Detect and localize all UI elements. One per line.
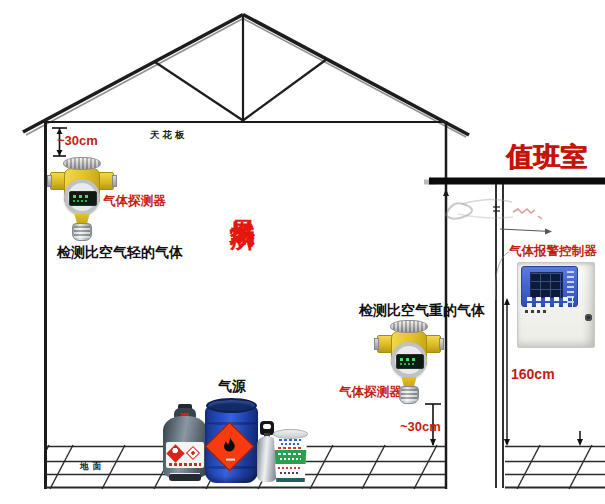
gas-detector-top-icon <box>48 157 116 241</box>
detector-display-text <box>400 363 414 365</box>
detector-left-port-cap <box>47 175 52 187</box>
bucket-micro-text <box>280 472 300 474</box>
floor-pointer-arrow <box>577 431 583 446</box>
wall-tick-arrow <box>443 189 449 196</box>
bucket-bottom-edge <box>274 478 307 482</box>
top-clearance-label: ~30cm <box>57 133 98 148</box>
ceiling-label: 天花板 <box>150 129 188 142</box>
duty-room-label: 值班室 <box>506 139 587 175</box>
bucket-band-lower <box>274 464 307 478</box>
controller-lcd-screen <box>530 272 563 298</box>
detector-left-port-cap <box>374 338 379 350</box>
detector-display-digits <box>400 358 418 361</box>
hazard-diamond-icon <box>166 444 184 462</box>
bucket-micro-text <box>278 447 302 449</box>
heavy-gas-note: 检测比空气重的气体 <box>359 302 485 320</box>
detector-sensor <box>72 223 92 241</box>
detector-right-port-cap <box>112 175 117 187</box>
faint-scribbles <box>446 199 542 219</box>
flammable-diamond-icon <box>205 422 254 471</box>
controller-text-marks <box>525 310 547 313</box>
bucket-micro-text <box>278 453 303 455</box>
flame-icon <box>220 437 240 457</box>
lpg-body <box>163 416 207 478</box>
detector-display-digits <box>73 195 91 198</box>
drum-body <box>205 406 258 483</box>
label-micro-text <box>169 463 201 466</box>
lpg-cylinder-icon <box>163 404 207 482</box>
flammable-area-label: 易燃场所 <box>226 199 260 311</box>
ground-label: 地面 <box>80 461 105 473</box>
controller-button-row <box>527 303 573 307</box>
detector-sensor-ribs <box>401 389 417 401</box>
bucket-body <box>274 435 307 482</box>
gas-detector-bottom-icon <box>375 320 443 404</box>
drum-top-rim <box>206 398 257 413</box>
controller-front-panel <box>521 266 578 307</box>
bucket-micro-text <box>278 467 302 469</box>
bottom-clearance-label: ~30cm <box>400 419 441 434</box>
gas-alarm-controller-icon <box>517 262 595 348</box>
gas-source-label: 气源 <box>218 378 246 396</box>
controller-enclosure <box>517 262 595 348</box>
floor-grid-duty <box>505 445 605 489</box>
paint-bucket-icon <box>273 429 308 483</box>
detector-display <box>396 354 424 369</box>
detector-top-cap <box>63 157 101 170</box>
controller-lock-icon <box>585 314 592 321</box>
label-leader-line <box>500 229 552 235</box>
detector-sensor-ribs <box>74 226 90 238</box>
detector-right-port-cap <box>439 338 444 350</box>
controller-height-dimension <box>504 298 510 446</box>
diagram-canvas: 天花板 ~30cm 气体探测器 检测比空气轻的气体 易燃场所 值班室 气体报警控… <box>0 0 605 504</box>
controller-label: 气体报警控制器 <box>509 243 597 260</box>
bucket-lid <box>273 429 308 439</box>
lpg-base <box>169 474 201 481</box>
bucket-band-green <box>274 450 307 464</box>
detector-top-cap <box>390 320 428 333</box>
bottle-handle-hole <box>263 424 271 429</box>
diamond-micro-text <box>226 459 235 461</box>
roof-truss <box>23 15 469 138</box>
bucket-micro-text <box>280 458 301 460</box>
chemical-drum-icon <box>205 398 258 483</box>
detector-sensor <box>399 386 419 404</box>
lpg-hazard-label <box>166 442 204 468</box>
controller-button-row <box>527 297 573 301</box>
hazard-diamond-icon <box>186 446 200 460</box>
right-strut <box>243 59 327 121</box>
detector-display <box>69 191 97 206</box>
bucket-micro-text <box>279 439 301 441</box>
bucket-micro-text <box>281 443 299 445</box>
detector-display-text <box>73 200 87 202</box>
light-gas-note: 检测比空气轻的气体 <box>57 244 183 262</box>
left-strut <box>155 62 243 121</box>
controller-height-label: 160cm <box>511 366 555 382</box>
